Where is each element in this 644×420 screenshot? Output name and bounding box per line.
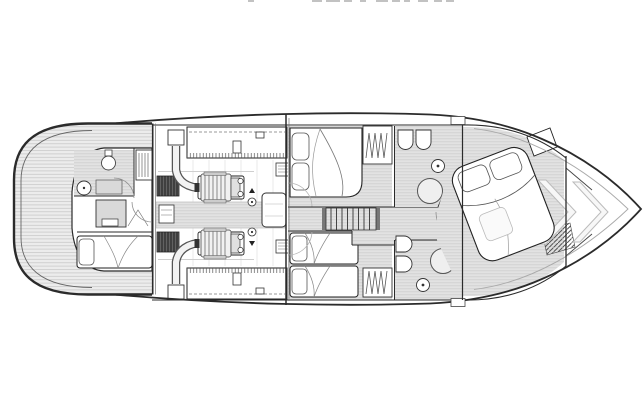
yacht-floorplan-canvas	[0, 0, 644, 420]
sink-icon	[398, 130, 413, 150]
engine-starboard	[195, 172, 245, 203]
sink-icon	[416, 130, 431, 150]
twin-berth-2	[290, 266, 358, 297]
wardrobe-twin	[363, 268, 392, 297]
engine-port	[195, 228, 245, 259]
pillow	[292, 133, 309, 160]
twin-berth-1	[290, 233, 358, 264]
pillow	[79, 239, 94, 265]
fuel-tank-starboard	[187, 127, 287, 158]
vanity-counter	[96, 180, 122, 194]
staircase	[322, 208, 380, 230]
yacht-deck-plan	[0, 0, 644, 420]
generator-unit	[262, 193, 286, 227]
wardrobe-vip	[363, 126, 392, 164]
hanging-locker	[136, 150, 152, 180]
pillow	[292, 269, 307, 294]
pillow	[292, 163, 309, 190]
crew-berth	[77, 236, 152, 268]
engine-room	[156, 127, 291, 299]
aft-crew-cabin	[72, 148, 152, 271]
sink-icon	[396, 236, 412, 252]
fuel-tank-port	[187, 268, 287, 299]
sink-icon	[396, 256, 412, 272]
vip-cabin	[288, 126, 392, 207]
battery-box-port	[157, 232, 179, 252]
deck-step	[451, 117, 465, 125]
shower-icon	[418, 179, 443, 204]
